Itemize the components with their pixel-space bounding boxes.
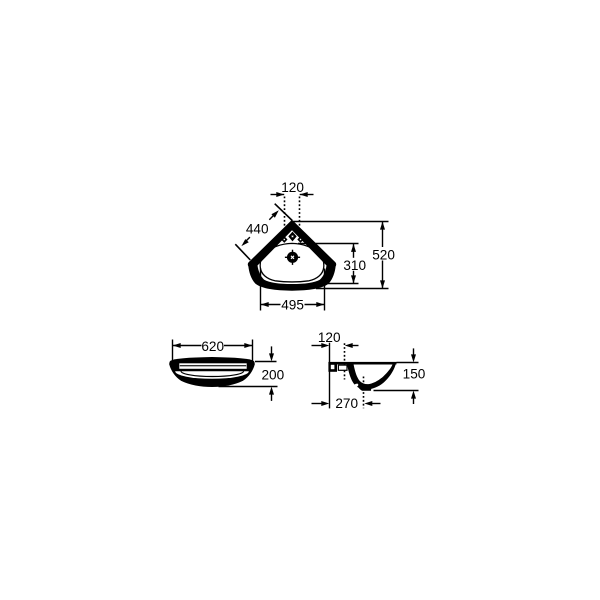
svg-text:495: 495 (281, 298, 304, 313)
svg-text:150: 150 (403, 366, 426, 381)
svg-text:120: 120 (318, 330, 341, 345)
svg-text:520: 520 (372, 248, 395, 263)
svg-text:200: 200 (261, 367, 284, 382)
svg-text:120: 120 (281, 180, 304, 195)
svg-text:440: 440 (246, 221, 269, 236)
svg-text:620: 620 (201, 339, 224, 354)
svg-text:270: 270 (335, 396, 358, 411)
svg-text:310: 310 (343, 258, 366, 273)
